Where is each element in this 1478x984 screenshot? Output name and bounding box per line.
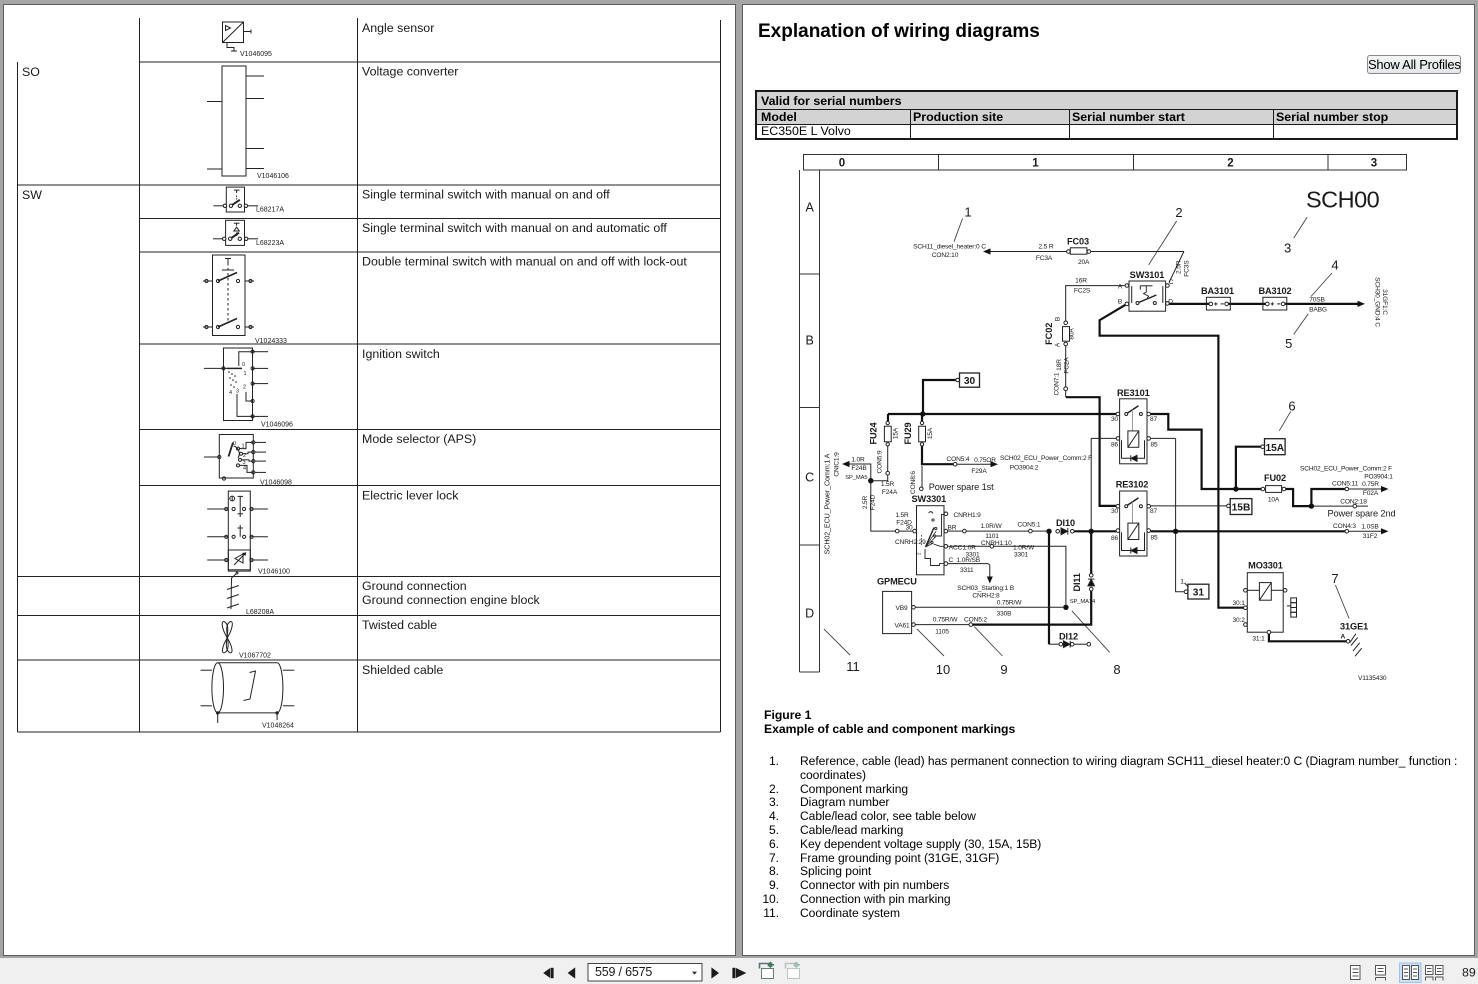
svg-text:BABG: BABG <box>1309 306 1327 313</box>
svg-text:4: 4 <box>243 466 246 472</box>
svg-text:Single terminal switch with ma: Single terminal switch with manual on an… <box>362 221 667 235</box>
svg-text:1: 1 <box>244 371 247 377</box>
svg-text:F29A: F29A <box>971 468 987 475</box>
svg-text:CON5:9: CON5:9 <box>877 450 884 473</box>
svg-text:SCH30_GND:4 C: SCH30_GND:4 C <box>1374 277 1381 327</box>
svg-text:CON4:3: CON4:3 <box>1333 523 1356 530</box>
svg-text:DI12: DI12 <box>1059 632 1078 642</box>
svg-text:30: 30 <box>1111 416 1119 423</box>
svg-text:V1046098: V1046098 <box>260 480 292 487</box>
svg-text:V1135430: V1135430 <box>1358 675 1387 682</box>
svg-text:5: 5 <box>1285 336 1292 351</box>
svg-text:15A: 15A <box>1265 443 1284 454</box>
svg-text:B: B <box>806 334 814 348</box>
svg-text:18R: 18R <box>1056 359 1063 371</box>
svg-text:ACC: ACC <box>949 544 963 551</box>
svg-text:1.0R/SB: 1.0R/SB <box>957 557 981 564</box>
svg-text:SP_MA14: SP_MA14 <box>1070 599 1096 605</box>
svg-text:16R: 16R <box>1075 278 1087 285</box>
svg-text:PO3904:1: PO3904:1 <box>1364 473 1393 480</box>
svg-text:3: 3 <box>1371 158 1377 170</box>
svg-text:7: 7 <box>1331 571 1338 586</box>
svg-text:B: B <box>1118 299 1123 306</box>
svg-text:A: A <box>1118 283 1123 290</box>
svg-text:Ignition switch: Ignition switch <box>362 347 440 361</box>
svg-text:31: 31 <box>1193 588 1205 599</box>
svg-text:SCH02_ECU_Power_Comm:2 F: SCH02_ECU_Power_Comm:2 F <box>1000 455 1092 462</box>
svg-text:SCH03_Starting:1 B: SCH03_Starting:1 B <box>957 585 1014 592</box>
svg-text:CNRH2:29: CNRH2:29 <box>895 539 926 546</box>
svg-text:SP_MA5: SP_MA5 <box>845 475 867 481</box>
svg-text:SW3101: SW3101 <box>1130 270 1165 280</box>
svg-text:V1046100: V1046100 <box>258 569 290 576</box>
svg-text:1105: 1105 <box>935 628 949 635</box>
svg-text:2.5R: 2.5R <box>1175 260 1182 274</box>
svg-text:CON7:1: CON7:1 <box>1054 372 1061 395</box>
svg-text:1.0SB: 1.0SB <box>1361 524 1379 531</box>
svg-text:6: 6 <box>1288 398 1295 413</box>
svg-text:330B: 330B <box>997 611 1013 618</box>
svg-text:9: 9 <box>1000 662 1007 677</box>
svg-text:30: 30 <box>964 376 976 387</box>
svg-text:559 / 6575: 559 / 6575 <box>595 965 652 979</box>
svg-text:0.75R: 0.75R <box>1362 481 1379 488</box>
svg-text:L68223A: L68223A <box>256 240 284 247</box>
svg-text:3: 3 <box>1284 241 1291 256</box>
svg-text:1.0R: 1.0R <box>851 457 865 464</box>
svg-text:FU29: FU29 <box>903 422 913 444</box>
svg-text:FU24: FU24 <box>869 421 879 444</box>
svg-text:Power spare 2nd: Power spare 2nd <box>1328 509 1396 519</box>
svg-text:30: 30 <box>905 524 913 531</box>
svg-text:DI11: DI11 <box>1072 573 1082 592</box>
svg-text:1101: 1101 <box>985 533 999 540</box>
svg-text:30:2: 30:2 <box>1233 617 1246 624</box>
svg-text:CON5:1: CON5:1 <box>1018 521 1041 528</box>
svg-text:31F2: 31F2 <box>1363 533 1378 540</box>
svg-text:CON5:2: CON5:2 <box>964 617 987 624</box>
svg-text:FC3A: FC3A <box>1036 255 1053 262</box>
svg-text:4: 4 <box>1331 258 1338 273</box>
svg-text:F24A: F24A <box>882 489 898 496</box>
svg-text:Mode selector (APS): Mode selector (APS) <box>362 432 476 446</box>
svg-text:V1067702: V1067702 <box>239 653 271 660</box>
svg-text:2.5R: 2.5R <box>862 495 869 509</box>
svg-text:30: 30 <box>1111 508 1119 515</box>
svg-text:2: 2 <box>917 552 922 555</box>
svg-text:Angle sensor: Angle sensor <box>362 21 434 35</box>
svg-text:0: 0 <box>242 362 245 368</box>
svg-text:SW: SW <box>22 188 42 202</box>
svg-text:CON8:6: CON8:6 <box>910 471 917 494</box>
svg-text:Ground connection: Ground connection <box>362 579 467 593</box>
svg-text:0.75R/W: 0.75R/W <box>933 617 959 624</box>
svg-text:Power spare 1st: Power spare 1st <box>929 482 994 492</box>
svg-text:3311: 3311 <box>960 567 974 574</box>
svg-text:BR: BR <box>948 524 957 531</box>
svg-text:FC2A: FC2A <box>1064 357 1071 374</box>
svg-text:3301: 3301 <box>1014 552 1029 559</box>
svg-text:GPMECU: GPMECU <box>877 576 917 586</box>
svg-text:VA61: VA61 <box>895 622 911 629</box>
svg-text:15A: 15A <box>927 427 934 439</box>
svg-text:A: A <box>806 201 815 215</box>
svg-text:31GE1: 31GE1 <box>1340 622 1368 632</box>
svg-text:87: 87 <box>1150 508 1158 515</box>
svg-text:FC2S: FC2S <box>1074 288 1091 295</box>
svg-text:1.5R: 1.5R <box>895 512 909 519</box>
svg-text:15B: 15B <box>1232 503 1251 514</box>
svg-text:15A: 15A <box>893 427 900 439</box>
svg-text:85: 85 <box>1150 442 1158 449</box>
svg-text:1: 1 <box>1032 158 1039 170</box>
svg-text:Ground connection engine block: Ground connection engine block <box>362 593 541 607</box>
svg-text:V1046095: V1046095 <box>240 51 272 58</box>
svg-text:1: 1 <box>964 205 971 220</box>
svg-text:31:1: 31:1 <box>1252 635 1265 642</box>
svg-text:Voltage converter: Voltage converter <box>362 65 458 79</box>
svg-text:1: 1 <box>1180 579 1184 586</box>
svg-text:80A: 80A <box>1069 328 1076 340</box>
svg-text:4: 4 <box>229 390 232 396</box>
svg-text:V1046106: V1046106 <box>257 173 289 180</box>
svg-text:FU02: FU02 <box>1264 473 1286 483</box>
svg-text:MO3301: MO3301 <box>1248 561 1283 571</box>
svg-text:FC02: FC02 <box>1044 323 1054 345</box>
svg-text:3: 3 <box>236 389 239 395</box>
svg-text:85: 85 <box>1150 534 1158 541</box>
svg-text:F02A: F02A <box>1363 490 1379 497</box>
svg-text:CNRH2:8: CNRH2:8 <box>972 592 1000 599</box>
svg-text:0: 0 <box>839 158 845 170</box>
svg-text:CNIC1:9: CNIC1:9 <box>834 452 841 477</box>
svg-text:D: D <box>805 607 814 621</box>
svg-text:SO: SO <box>22 65 40 79</box>
svg-text:CON2:10: CON2:10 <box>932 252 959 259</box>
svg-text:20A: 20A <box>1078 259 1090 266</box>
svg-text:86: 86 <box>1111 442 1119 449</box>
svg-text:A: A <box>1341 634 1346 641</box>
svg-text:2: 2 <box>243 385 246 391</box>
svg-text:Shielded cable: Shielded cable <box>362 663 443 677</box>
svg-text:2: 2 <box>1175 205 1182 220</box>
svg-text:F24D: F24D <box>870 494 877 510</box>
svg-text:B: B <box>1055 316 1062 321</box>
svg-text:V1024333: V1024333 <box>255 338 287 345</box>
svg-text:F24B: F24B <box>851 465 867 472</box>
svg-text:8: 8 <box>1113 662 1120 677</box>
svg-text:A: A <box>1055 342 1062 347</box>
svg-text:C: C <box>805 471 814 485</box>
svg-text:RE3101: RE3101 <box>1117 388 1150 398</box>
svg-text:Twisted cable: Twisted cable <box>362 618 437 632</box>
svg-text:V1046096: V1046096 <box>261 422 293 429</box>
svg-text:L68217A: L68217A <box>256 207 284 214</box>
svg-text:SW3301: SW3301 <box>912 494 947 504</box>
svg-text:87: 87 <box>1150 416 1158 423</box>
svg-text:2: 2 <box>1227 158 1233 170</box>
svg-text:0.75R/W: 0.75R/W <box>997 599 1023 606</box>
svg-text:SCH02_ECU_Power_Comm:1 A: SCH02_ECU_Power_Comm:1 A <box>822 453 831 554</box>
svg-text:RE3102: RE3102 <box>1116 480 1149 490</box>
svg-text:CON5:11: CON5:11 <box>1332 480 1358 487</box>
svg-text:1.0R/W: 1.0R/W <box>1013 544 1035 551</box>
svg-text:CNRH1:9: CNRH1:9 <box>954 512 982 519</box>
svg-text:PO3904:2: PO3904:2 <box>1010 464 1039 471</box>
svg-text:86: 86 <box>1111 535 1119 542</box>
svg-text:70SB: 70SB <box>1309 297 1325 304</box>
svg-text:10A: 10A <box>1268 496 1280 503</box>
svg-text:VB9: VB9 <box>896 605 908 612</box>
svg-text:DI10: DI10 <box>1056 518 1075 528</box>
svg-text:D: D <box>1168 298 1173 305</box>
svg-text:BA3102: BA3102 <box>1258 286 1291 296</box>
svg-text:SCH00: SCH00 <box>1306 187 1380 213</box>
svg-text:Electric lever lock: Electric lever lock <box>362 489 459 503</box>
svg-text:Single terminal switch with ma: Single terminal switch with manual on an… <box>362 188 610 202</box>
svg-text:0.75OR: 0.75OR <box>974 457 996 464</box>
svg-text:FC3S: FC3S <box>1184 260 1191 277</box>
svg-text:FC03: FC03 <box>1067 237 1089 247</box>
svg-text:BA3101: BA3101 <box>1201 286 1234 296</box>
svg-text:V1048264: V1048264 <box>262 723 294 730</box>
svg-text:1.5R: 1.5R <box>881 481 895 488</box>
svg-text:1.0R/W: 1.0R/W <box>980 523 1002 530</box>
svg-text:L68208A: L68208A <box>246 609 274 616</box>
svg-text:89: 89 <box>1462 966 1476 980</box>
svg-text:10: 10 <box>936 662 950 677</box>
svg-text:Double terminal switch with ma: Double terminal switch with manual on an… <box>362 255 687 269</box>
svg-text:SCH02_ECU_Power_Comm:2 F: SCH02_ECU_Power_Comm:2 F <box>1300 465 1392 472</box>
svg-text:2.5 R: 2.5 R <box>1038 244 1053 251</box>
svg-text:30:1: 30:1 <box>1233 600 1246 607</box>
svg-text:C: C <box>1169 279 1174 286</box>
svg-text:CNRH1:10: CNRH1:10 <box>981 540 1012 547</box>
svg-text:11: 11 <box>846 659 860 674</box>
svg-text:CON5:4: CON5:4 <box>947 456 970 463</box>
svg-text:SCH11_diesel_heater:0 C: SCH11_diesel_heater:0 C <box>913 243 986 250</box>
svg-text:0: 0 <box>233 441 236 447</box>
svg-text:1.0R: 1.0R <box>963 544 977 551</box>
svg-text:C: C <box>949 557 954 564</box>
svg-text:31GF1:C: 31GF1:C <box>1381 289 1388 315</box>
svg-text:CON2:18: CON2:18 <box>1340 498 1367 505</box>
